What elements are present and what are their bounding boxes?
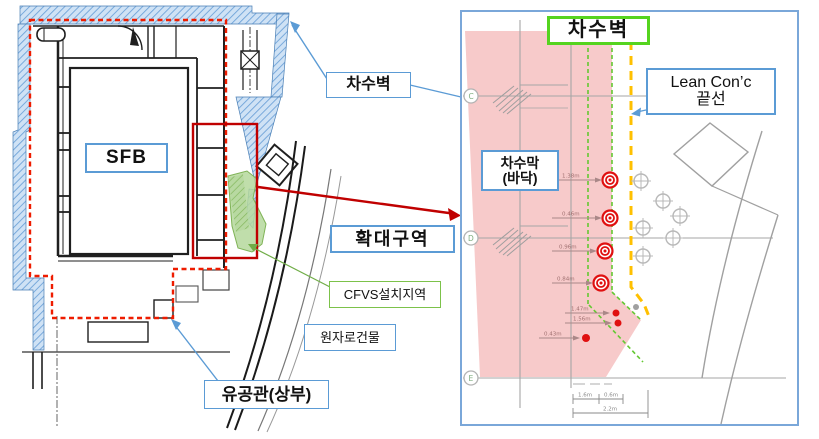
dim-bottom-1: 1.6m: [578, 393, 592, 399]
perforated-pipe-label-text: 유공관(상부): [222, 386, 312, 404]
dim-target-4: 0.84m: [557, 277, 575, 283]
reactor-building-label-text: 원자로건물: [320, 331, 380, 345]
dim-bottom-2: 0.6m: [604, 393, 618, 399]
membrane-label-box: 차수막 (바닥): [481, 150, 559, 191]
enlarged-zone-label-box: 확대구역: [330, 225, 455, 253]
dim-dot-1: 1.47m: [571, 307, 589, 313]
sfb-label-text: SFB: [106, 148, 147, 168]
dim-dot-3: 0.43m: [544, 332, 562, 338]
dim-target-3: 0.96m: [559, 245, 577, 251]
lean-conc-label-line1: Lean Con’c: [671, 75, 752, 92]
dim-dot-2: 1.56m: [573, 317, 591, 323]
membrane-label-line1: 차수막: [501, 156, 540, 171]
grid-marker-d: D: [468, 234, 474, 243]
barrier-wall-label-box-left: 차수벽: [326, 72, 411, 98]
barrier-wall-label-box-right: 차수벽: [547, 16, 650, 45]
lean-conc-label-box: Lean Con’c 끝선: [646, 68, 776, 115]
membrane-label-line2: (바닥): [502, 171, 537, 186]
dim-target-2: 0.46m: [562, 212, 580, 218]
cfvs-area-label-box: CFVS설치지역: [329, 281, 441, 308]
cfvs-area-label-text: CFVS설치지역: [344, 288, 427, 302]
building-walls: [22, 26, 259, 428]
left-plan: [13, 6, 461, 432]
enlarged-zone-label-text: 확대구역: [355, 230, 429, 249]
dim-bottom-3: 2.2m: [603, 407, 617, 413]
engineering-diagram: C D E: [0, 0, 819, 439]
grid-marker-c: C: [469, 92, 474, 101]
diagram-canvas: C D E: [0, 0, 819, 439]
perforated-pipe-label-box: 유공관(상부): [204, 380, 329, 409]
barrier-wall-label-text: 차수벽: [346, 77, 390, 94]
cfvs-area: [228, 171, 266, 252]
grid-marker-e: E: [469, 374, 474, 383]
barrier-wall-label-text-right: 차수벽: [568, 20, 629, 41]
lean-conc-label-line2: 끝선: [696, 92, 725, 109]
dim-target-1: 1.38m: [562, 174, 580, 180]
reactor-building-label-box: 원자로건물: [304, 324, 396, 351]
sfb-label-box: SFB: [85, 143, 168, 173]
